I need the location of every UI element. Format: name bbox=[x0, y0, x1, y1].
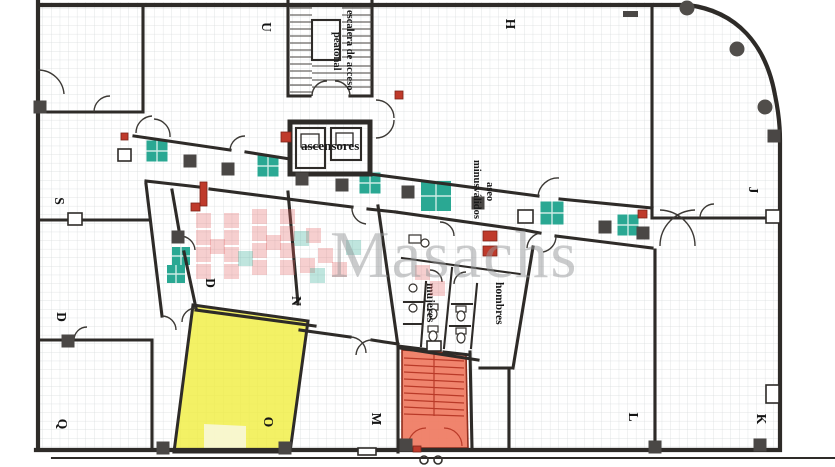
room-letter-d: D bbox=[203, 278, 218, 288]
stair-label-line1: escalera de acceso bbox=[344, 10, 355, 90]
pillar bbox=[172, 231, 185, 244]
red-mark bbox=[281, 132, 291, 142]
watermark-pink-cell bbox=[252, 243, 267, 258]
watermark-teal-cell bbox=[294, 231, 309, 246]
room-letter-q: Q bbox=[55, 419, 70, 430]
watermark-pink-cell bbox=[196, 213, 211, 228]
room-letter-s: S bbox=[52, 197, 67, 205]
red-mark bbox=[191, 203, 200, 211]
watermark-pink-cell bbox=[224, 230, 239, 245]
watermark-pink-cell bbox=[252, 226, 267, 241]
red-mark bbox=[121, 133, 128, 140]
room-letter-u: U bbox=[259, 22, 274, 32]
pillar bbox=[184, 155, 197, 168]
wc-disabled-line2: minusválidos bbox=[471, 160, 482, 219]
wc-disabled-line1: aseo bbox=[484, 182, 495, 201]
pillar bbox=[402, 186, 415, 199]
pillar bbox=[768, 130, 781, 143]
room-letter-j: J bbox=[746, 187, 761, 194]
pillar bbox=[637, 227, 650, 240]
watermark-pink-cell bbox=[224, 264, 239, 279]
room-letter-l: L bbox=[626, 412, 641, 421]
watermark-pink-cell bbox=[210, 239, 225, 254]
stair-label-line2: peatonal bbox=[331, 32, 342, 71]
room-letter-n: N bbox=[289, 296, 304, 306]
room-letter-h: H bbox=[503, 19, 518, 30]
floor-plan-svg: escalera de acceso peatonal ascensores a… bbox=[0, 0, 835, 467]
pillar bbox=[157, 442, 170, 455]
red-mark bbox=[413, 446, 421, 452]
watermark-teal-cell bbox=[310, 268, 325, 283]
watermark-pink-cell bbox=[196, 230, 211, 245]
watermark-pink-cell bbox=[280, 226, 295, 241]
pillar bbox=[222, 163, 235, 176]
pillar bbox=[336, 179, 349, 192]
watermark-pink-cell bbox=[196, 264, 211, 279]
watermark-pink-cell bbox=[196, 247, 211, 262]
emergency-stairs-red bbox=[402, 350, 468, 448]
watermark-pink-cell bbox=[280, 243, 295, 258]
watermark-pink-cell bbox=[280, 260, 295, 275]
pillar bbox=[649, 441, 662, 454]
pillar bbox=[754, 439, 767, 452]
round-pillar bbox=[680, 1, 695, 16]
watermark-pink-cell bbox=[224, 213, 239, 228]
red-mark bbox=[395, 91, 403, 99]
pillar bbox=[296, 173, 309, 186]
round-pillar bbox=[730, 42, 745, 57]
red-mark bbox=[638, 210, 647, 218]
watermark-pink-cell bbox=[224, 247, 239, 262]
label-elevators: ascensores bbox=[301, 138, 359, 153]
wall-bar bbox=[623, 11, 638, 17]
pillar bbox=[400, 439, 413, 452]
floor-plan-scan: escalera de acceso peatonal ascensores a… bbox=[0, 0, 835, 467]
pillar bbox=[62, 335, 75, 348]
room-letter-o: O bbox=[261, 417, 276, 428]
pillar bbox=[599, 221, 612, 234]
room-letter-k: K bbox=[754, 414, 769, 425]
pillar bbox=[279, 442, 292, 455]
pillar bbox=[34, 101, 47, 114]
room-letter-d: D bbox=[54, 312, 69, 322]
watermark-pink-cell bbox=[280, 209, 295, 224]
watermark-pink-cell bbox=[266, 235, 281, 250]
watermark-teal-cell bbox=[238, 251, 253, 266]
red-mark bbox=[200, 182, 207, 206]
watermark-pink-cell bbox=[252, 260, 267, 275]
room-letter-m: M bbox=[369, 413, 384, 426]
round-pillar bbox=[758, 100, 773, 115]
room-o-pale-corner bbox=[204, 424, 246, 450]
watermark-brand-text: Masachs bbox=[330, 218, 578, 292]
watermark-pink-cell bbox=[252, 209, 267, 224]
